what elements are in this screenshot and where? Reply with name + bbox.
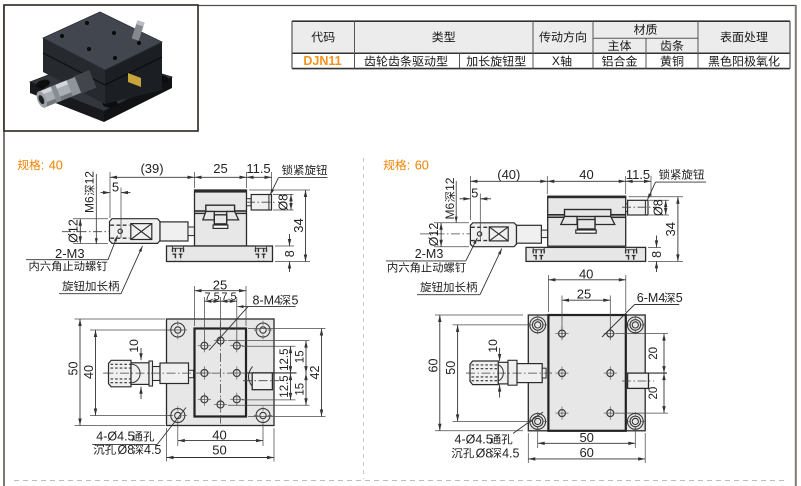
svg-text:11.5: 11.5	[626, 167, 650, 182]
svg-text:60: 60	[426, 359, 440, 373]
svg-text::: :	[407, 158, 410, 172]
svg-text:2-M3: 2-M3	[55, 246, 85, 261]
svg-text:Ø12: Ø12	[427, 223, 441, 247]
svg-text:20: 20	[648, 387, 660, 400]
svg-text:8-M4: 8-M4	[253, 293, 282, 307]
svg-text:34: 34	[663, 222, 678, 236]
svg-text:50: 50	[444, 361, 458, 375]
svg-text:10: 10	[486, 339, 500, 353]
svg-text:5: 5	[112, 180, 119, 195]
svg-text:50: 50	[579, 430, 593, 445]
svg-text:15: 15	[295, 383, 307, 396]
svg-text:12.5: 12.5	[279, 375, 291, 397]
svg-text:42: 42	[308, 366, 322, 380]
svg-text:40: 40	[579, 266, 593, 281]
svg-text:6-M4: 6-M4	[637, 291, 666, 305]
svg-text:25: 25	[577, 287, 591, 302]
svg-text:8: 8	[283, 250, 297, 257]
svg-text:60: 60	[579, 445, 593, 460]
svg-text:40: 40	[579, 167, 593, 182]
svg-text:(40): (40)	[497, 167, 520, 182]
svg-text:15: 15	[295, 350, 307, 363]
svg-text:50: 50	[212, 443, 226, 458]
svg-text:20: 20	[648, 347, 660, 360]
svg-text:60: 60	[415, 158, 429, 173]
svg-text:40: 40	[212, 427, 226, 442]
svg-text:2-M3: 2-M3	[415, 247, 444, 261]
svg-text:4-Ø4.5: 4-Ø4.5	[455, 433, 493, 447]
svg-text:Ø8: Ø8	[476, 446, 493, 460]
svg-text:11.5: 11.5	[246, 161, 270, 176]
svg-text::: :	[41, 158, 44, 172]
svg-text:5: 5	[676, 291, 683, 305]
svg-text:8: 8	[650, 251, 664, 258]
svg-text:7.5: 7.5	[204, 291, 219, 303]
svg-text:Ø8: Ø8	[118, 443, 135, 457]
svg-text:Ø12: Ø12	[67, 219, 81, 243]
svg-text:40: 40	[82, 365, 96, 379]
svg-text:DJN11: DJN11	[303, 54, 341, 68]
svg-text:4-Ø4.5: 4-Ø4.5	[96, 430, 134, 444]
svg-text:5: 5	[292, 293, 299, 307]
svg-text:34: 34	[291, 218, 306, 232]
svg-text:40: 40	[49, 158, 63, 173]
svg-text:(39): (39)	[140, 161, 163, 176]
svg-text:X: X	[552, 54, 560, 68]
svg-text:25: 25	[213, 161, 227, 176]
svg-text:5: 5	[471, 186, 478, 201]
svg-text:M6: M6	[83, 196, 97, 213]
svg-text:50: 50	[67, 362, 81, 376]
svg-text:25: 25	[213, 277, 227, 292]
svg-text:12.5: 12.5	[279, 349, 291, 371]
svg-text:4.5: 4.5	[144, 443, 161, 457]
svg-text:7.5: 7.5	[221, 291, 236, 303]
svg-text:12: 12	[83, 171, 97, 185]
svg-text:Ø8: Ø8	[651, 199, 665, 216]
svg-text:4.5: 4.5	[502, 446, 519, 460]
svg-text:Ø8: Ø8	[277, 194, 291, 211]
svg-text:10: 10	[127, 339, 141, 353]
svg-text:12: 12	[443, 177, 457, 191]
